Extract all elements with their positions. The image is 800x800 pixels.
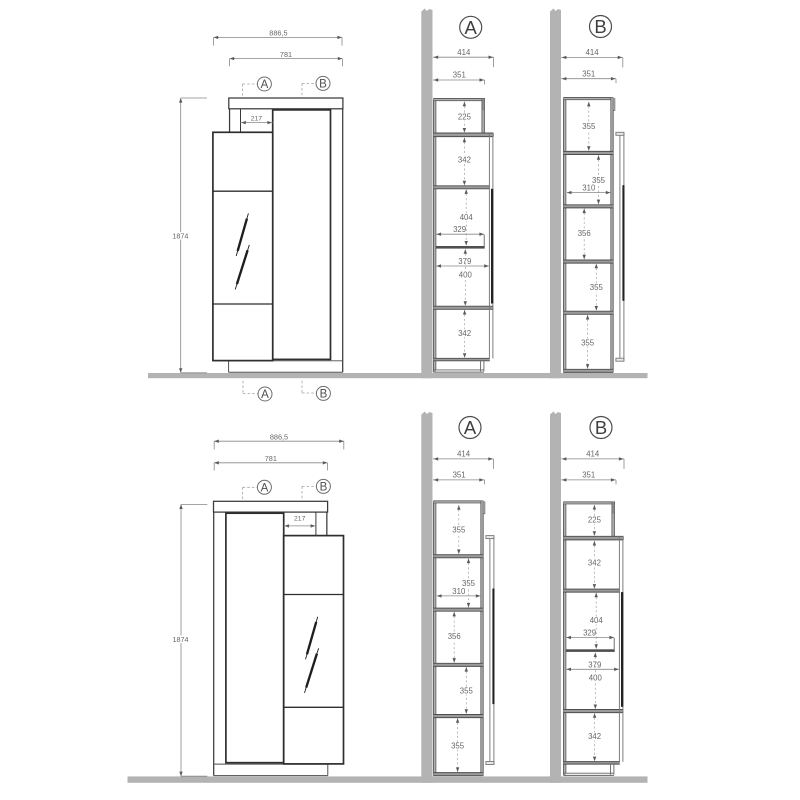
- svg-text:414: 414: [457, 450, 471, 459]
- svg-text:356: 356: [578, 229, 591, 238]
- svg-text:342: 342: [458, 155, 471, 164]
- svg-text:A: A: [464, 417, 477, 438]
- svg-text:1874: 1874: [172, 231, 188, 240]
- svg-text:217: 217: [251, 115, 263, 122]
- svg-text:B: B: [319, 78, 327, 90]
- svg-text:400: 400: [459, 270, 473, 279]
- svg-text:A: A: [261, 389, 269, 401]
- svg-text:A: A: [261, 79, 269, 91]
- svg-text:A: A: [261, 482, 269, 494]
- svg-text:781: 781: [280, 50, 292, 59]
- svg-text:414: 414: [586, 450, 600, 459]
- svg-text:886,5: 886,5: [270, 432, 288, 441]
- svg-text:355: 355: [581, 338, 595, 347]
- svg-text:414: 414: [586, 48, 600, 57]
- svg-text:A: A: [465, 17, 478, 38]
- svg-text:355: 355: [590, 283, 604, 292]
- svg-text:217: 217: [294, 516, 306, 523]
- svg-text:886,5: 886,5: [269, 29, 287, 38]
- svg-text:B: B: [320, 481, 328, 493]
- svg-text:351: 351: [453, 471, 466, 480]
- svg-text:310: 310: [582, 184, 596, 193]
- svg-text:1874: 1874: [173, 635, 189, 644]
- svg-text:329: 329: [453, 225, 466, 234]
- svg-text:342: 342: [458, 329, 471, 338]
- svg-text:351: 351: [453, 71, 466, 80]
- svg-text:404: 404: [460, 213, 474, 222]
- svg-text:225: 225: [458, 112, 472, 121]
- svg-text:351: 351: [582, 471, 595, 480]
- svg-text:B: B: [594, 16, 606, 37]
- svg-text:B: B: [320, 388, 328, 400]
- svg-text:781: 781: [265, 454, 277, 463]
- svg-text:351: 351: [582, 69, 595, 78]
- svg-text:B: B: [595, 417, 607, 438]
- svg-text:355: 355: [582, 122, 596, 131]
- svg-text:379: 379: [458, 257, 471, 266]
- svg-text:414: 414: [457, 48, 471, 57]
